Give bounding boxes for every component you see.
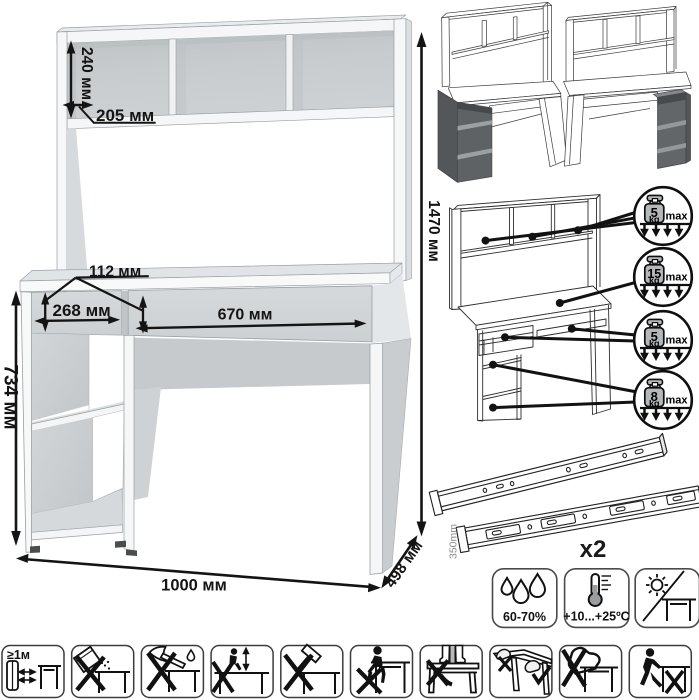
svg-text:1470 мм: 1470 мм	[425, 200, 442, 262]
svg-text:max: max	[666, 335, 689, 347]
svg-text:1000 мм: 1000 мм	[161, 577, 227, 595]
svg-text:60-70%: 60-70%	[503, 610, 546, 624]
svg-text:350mm: 350mm	[448, 524, 460, 559]
svg-text:max: max	[666, 272, 689, 284]
svg-text:240 мм: 240 мм	[78, 47, 95, 100]
svg-text:268 мм: 268 мм	[53, 301, 111, 320]
svg-text:205 мм: 205 мм	[96, 106, 154, 125]
svg-text:670 мм: 670 мм	[218, 307, 273, 324]
svg-text:max: max	[666, 395, 689, 407]
svg-text:734 мм: 734 мм	[0, 364, 21, 429]
svg-text:≥1м: ≥1м	[7, 648, 30, 662]
svg-text:+10...+25ºC: +10...+25ºC	[563, 610, 629, 624]
svg-text:max: max	[666, 211, 689, 223]
svg-text:x2: x2	[580, 536, 607, 563]
